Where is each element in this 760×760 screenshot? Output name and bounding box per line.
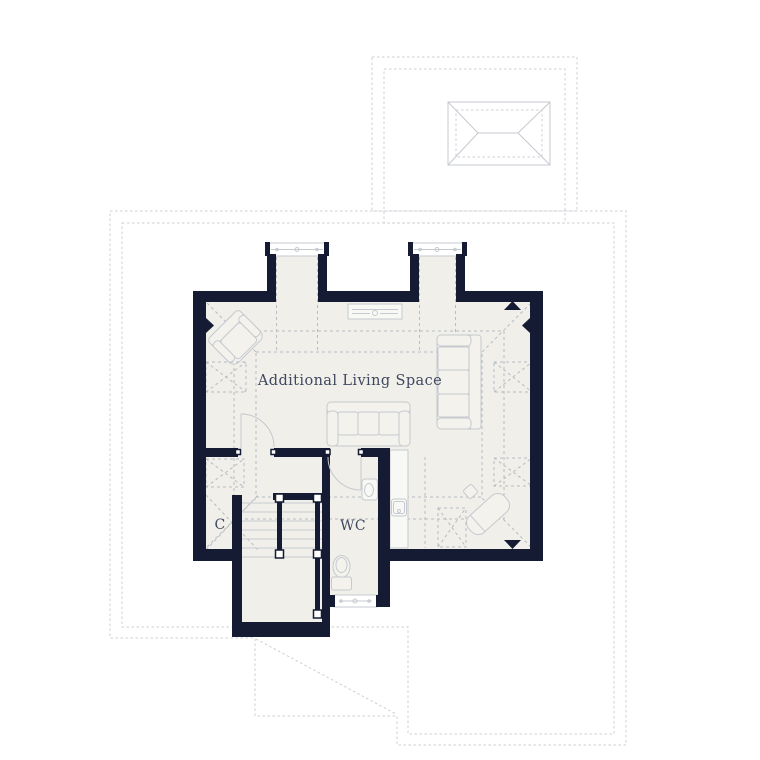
dormer-cap — [324, 242, 329, 256]
door-jamb — [271, 450, 276, 455]
roof-valley-line — [256, 639, 396, 714]
stairwell-wall — [232, 622, 330, 637]
wc-wall — [376, 595, 390, 607]
upper-roof-outline-inner — [384, 69, 565, 223]
sofa-center — [327, 402, 410, 446]
newel-post — [314, 550, 322, 558]
label-closet: C — [214, 517, 225, 533]
lantern-hip — [448, 102, 478, 133]
floor-plan: Additional Living Space WC C — [0, 0, 760, 760]
dormer-wall — [410, 254, 419, 302]
sofa-right — [437, 335, 481, 429]
door-jamb — [359, 450, 364, 455]
dormer-wall — [318, 254, 327, 302]
wc-window — [334, 595, 377, 607]
wc-wall — [330, 595, 335, 607]
stairwell-wall — [232, 495, 242, 637]
radiator — [348, 304, 402, 319]
internal-wall — [194, 448, 238, 457]
dormer-wall — [456, 254, 465, 302]
upper-roof-outline-outer — [372, 57, 577, 211]
handrail — [315, 500, 320, 618]
label-wc: WC — [340, 518, 366, 534]
newel-post — [314, 494, 322, 502]
toilet-icon — [332, 556, 352, 591]
kitchenette-counter — [390, 450, 408, 548]
basin-icon — [362, 479, 378, 500]
dormer-cap — [265, 242, 270, 256]
lantern-hip — [518, 102, 550, 133]
newel-post — [276, 494, 284, 502]
newel-post — [314, 610, 322, 618]
internal-wall — [274, 448, 328, 457]
stairwell-wall — [322, 448, 330, 622]
dormer-cap — [462, 242, 467, 256]
left-wall — [193, 291, 206, 561]
dormer-cap — [408, 242, 413, 256]
lantern-hip — [448, 133, 478, 165]
newel-post — [276, 550, 284, 558]
roof-lantern — [448, 102, 550, 165]
bottom-wall — [390, 549, 543, 561]
top-wall — [327, 291, 410, 302]
floor-plan-svg: Additional Living Space WC C — [0, 0, 760, 760]
handrail — [277, 500, 282, 556]
right-wall — [530, 291, 543, 561]
lantern-hip — [518, 133, 550, 165]
door-jamb — [236, 450, 241, 455]
dormer-wall — [267, 254, 276, 302]
label-living-space: Additional Living Space — [257, 373, 442, 389]
door-jamb — [325, 450, 330, 455]
bottom-wall — [193, 549, 232, 561]
wall-stub — [193, 488, 206, 500]
wc-wall — [378, 448, 390, 607]
